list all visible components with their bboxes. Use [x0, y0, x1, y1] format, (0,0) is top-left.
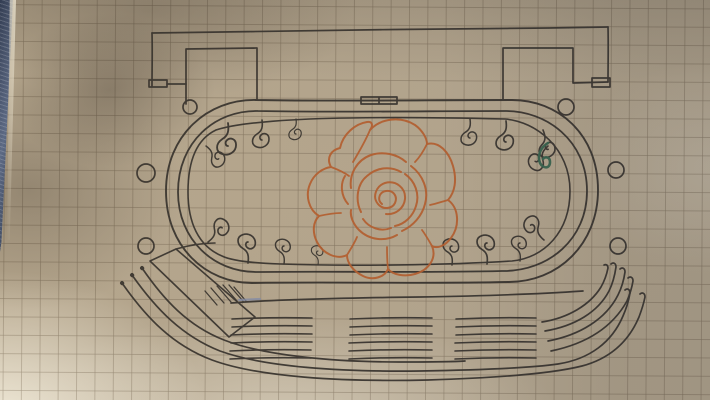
rose-spiral-center: [375, 182, 405, 214]
wave-scroll: [289, 119, 301, 140]
marker-circle: [558, 99, 574, 115]
wave-scroll: [477, 235, 494, 264]
rose-middle-petals: [342, 153, 426, 239]
marker-circle: [137, 164, 155, 182]
row-sweep: [132, 275, 630, 371]
rose-inner-petals: [358, 168, 418, 229]
row-sweep-dots: [122, 268, 142, 283]
right-row-fan: [542, 263, 633, 351]
ink-drawing: [122, 27, 645, 380]
row-sweep: [545, 263, 616, 331]
rose-petal-folds: [319, 130, 448, 269]
wave-scroll: [200, 142, 228, 170]
wave-scroll: [201, 216, 232, 247]
wave-scroll: [238, 234, 255, 263]
wave-scroll: [275, 239, 290, 264]
center-rose: [308, 119, 457, 278]
photo-of-sketch: [0, 0, 710, 400]
wave-scroll: [511, 236, 526, 261]
left-building: [149, 33, 257, 104]
left-building-inner: [186, 48, 257, 104]
right-building-base: [503, 48, 608, 100]
scroll-ornaments: [200, 119, 557, 265]
wave-scroll: [461, 119, 477, 145]
blue-pen-dash: [239, 299, 260, 300]
wave-scroll: [496, 121, 513, 150]
marker-circle: [608, 162, 624, 178]
marker-circle: [610, 238, 626, 254]
wave-scroll: [253, 120, 270, 148]
ramp-hatched: [150, 243, 255, 337]
marker-circle: [183, 100, 197, 114]
left-row-sweeps: [122, 268, 645, 380]
marker-circle: [138, 238, 154, 254]
right-building: [503, 27, 610, 100]
sketch-drawing: [0, 0, 710, 400]
top-wall-line: [152, 27, 608, 33]
rose-outer-petals: [308, 119, 457, 278]
lower-long-line: [231, 291, 583, 303]
